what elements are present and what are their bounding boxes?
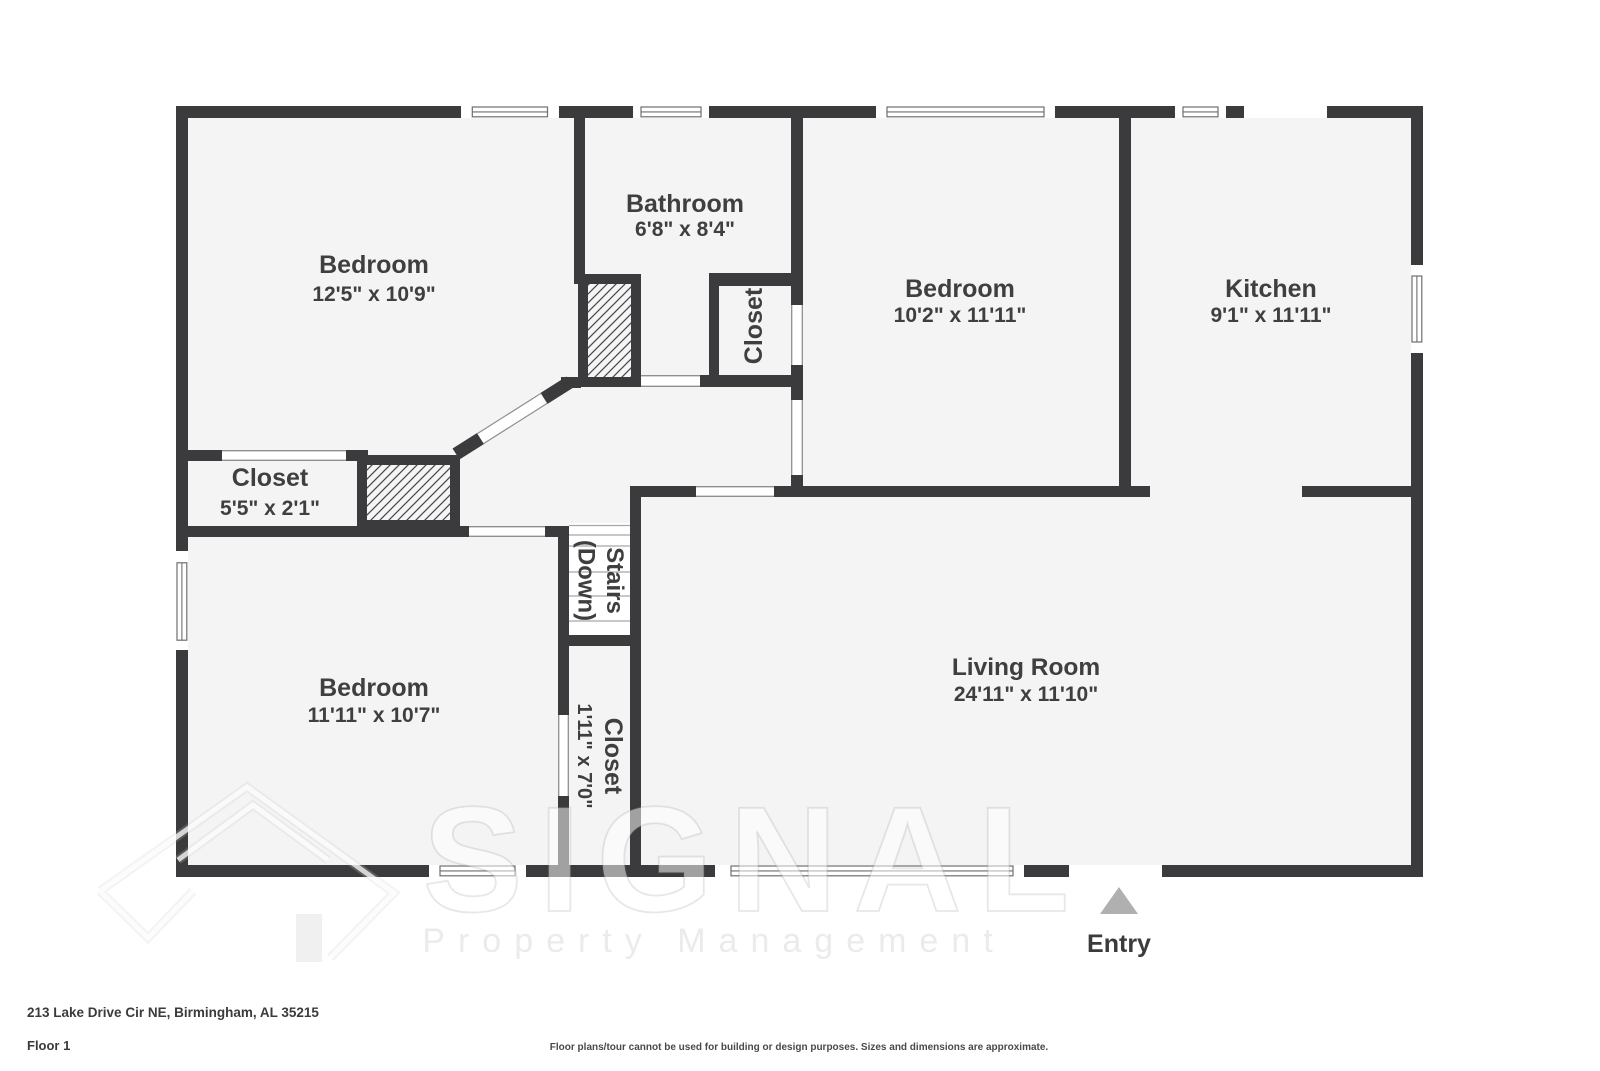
- svg-text:Floor plans/tour cannot be use: Floor plans/tour cannot be used for buil…: [550, 1042, 1049, 1053]
- svg-text:213 Lake Drive Cir NE, Birming: 213 Lake Drive Cir NE, Birmingham, AL 35…: [27, 1005, 319, 1020]
- svg-text:Closet: Closet: [740, 287, 768, 364]
- svg-text:5'5" x 2'1": 5'5" x 2'1": [220, 497, 320, 520]
- svg-text:6'8" x 8'4": 6'8" x 8'4": [635, 218, 735, 241]
- svg-text:12'5" x 10'9": 12'5" x 10'9": [312, 283, 435, 306]
- svg-text:Property Management: Property Management: [422, 922, 1005, 960]
- svg-text:Bedroom: Bedroom: [319, 674, 429, 702]
- svg-text:Living Room: Living Room: [952, 654, 1100, 681]
- svg-text:SIGNAL: SIGNAL: [423, 775, 1086, 943]
- svg-text:10'2" x 11'11": 10'2" x 11'11": [894, 304, 1027, 327]
- svg-text:Entry: Entry: [1087, 930, 1151, 958]
- svg-text:Floor 1: Floor 1: [27, 1038, 70, 1053]
- svg-text:11'11" x 10'7": 11'11" x 10'7": [308, 704, 441, 727]
- svg-text:24'11" x 11'10": 24'11" x 11'10": [954, 683, 1098, 706]
- svg-text:Bathroom: Bathroom: [626, 190, 744, 218]
- svg-text:Stairs(Down): Stairs(Down): [573, 540, 628, 621]
- svg-text:9'1" x 11'11": 9'1" x 11'11": [1210, 304, 1331, 327]
- svg-text:Bedroom: Bedroom: [905, 275, 1015, 303]
- svg-text:Closet: Closet: [232, 464, 309, 492]
- svg-text:Kitchen: Kitchen: [1225, 275, 1317, 303]
- svg-text:Bedroom: Bedroom: [319, 251, 429, 279]
